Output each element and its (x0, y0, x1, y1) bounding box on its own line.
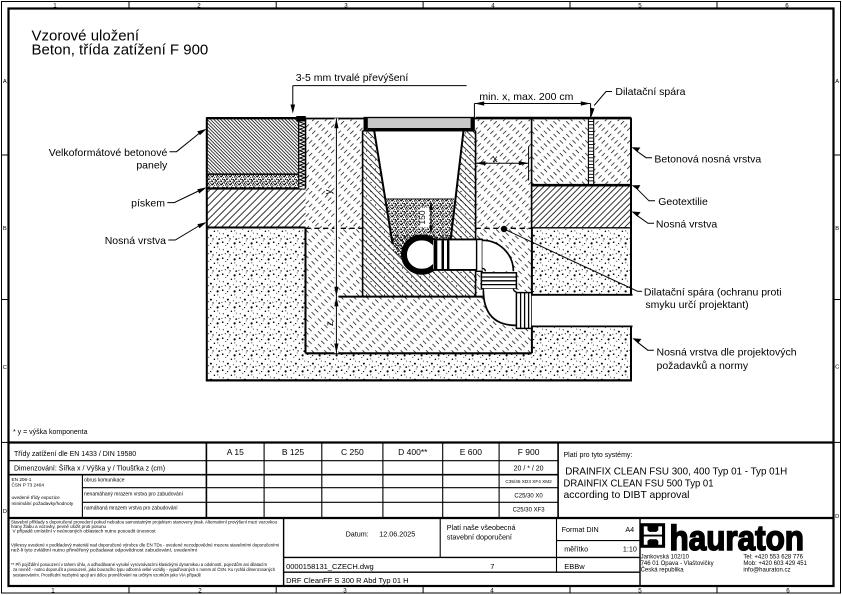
svg-text:3-5 mm trvalé převýšení: 3-5 mm trvalé převýšení (296, 72, 409, 84)
svg-text:C: C (835, 365, 839, 371)
svg-text:1:10: 1:10 (623, 545, 637, 554)
svg-text:* y = výška komponenta: * y = výška komponenta (13, 429, 88, 436)
svg-text:150: 150 (417, 210, 427, 224)
svg-text:E 600: E 600 (460, 447, 482, 457)
svg-text:panely: panely (136, 160, 168, 172)
svg-text:Dilatační spára (ochranu proti: Dilatační spára (ochranu proti (644, 286, 782, 298)
svg-text:Dimenzování: Šířka x / Výška: Dimenzování: Šířka x / Výška y / Tloušťk… (14, 464, 165, 473)
svg-text:ČSN P 73 2404: ČSN P 73 2404 (12, 482, 45, 488)
svg-text:A4: A4 (625, 525, 634, 534)
svg-text:2: 2 (197, 2, 201, 9)
svg-text:Geotextilie: Geotextilie (658, 196, 708, 208)
svg-text:4: 4 (491, 2, 495, 9)
svg-text:B: B (3, 226, 7, 232)
svg-text:6: 6 (785, 2, 789, 9)
svg-text:y: y (324, 190, 335, 195)
svg-text:C: C (3, 365, 7, 371)
svg-text:D 400**: D 400** (398, 447, 428, 457)
svg-text:za rovněž - nutno doporučit a: za rovněž - nutno doporučit a posouzení,… (13, 566, 275, 572)
svg-text:obrus komunikace: obrus komunikace (84, 478, 125, 484)
svg-text:0000158131_CZECH.dwg: 0000158131_CZECH.dwg (286, 562, 374, 571)
svg-text:12.06.2025: 12.06.2025 (379, 530, 415, 539)
svg-text:3: 3 (344, 2, 348, 9)
svg-text:Platí pro tyto systémy:: Platí pro tyto systémy: (564, 452, 633, 459)
svg-text:C25/30 XF3: C25/30 XF3 (513, 508, 546, 514)
svg-text:Format DIN: Format DIN (562, 525, 599, 534)
svg-text:C 250: C 250 (341, 447, 364, 457)
svg-text:uvedené třídy expozice: uvedené třídy expozice (12, 495, 61, 500)
svg-text:hauraton: hauraton (670, 518, 805, 558)
svg-text:B 125: B 125 (282, 447, 304, 457)
svg-text:A 15: A 15 (227, 447, 244, 457)
svg-text:4: 4 (490, 588, 494, 595)
svg-text:746 01 Opava - Vlaštovičky: 746 01 Opava - Vlaštovičky (641, 561, 714, 567)
svg-text:Nosná vrstva: Nosná vrstva (105, 235, 166, 247)
svg-text:Datum:: Datum: (346, 530, 369, 539)
svg-text:according to DIBT approval: according to DIBT approval (564, 489, 690, 501)
svg-text:Česká republika: Česká republika (641, 567, 685, 574)
svg-text:sestavováním. Prostřední nezby: sestavováním. Prostřední nezbytné spojí … (13, 572, 201, 578)
svg-text:** Při pojíždění posouzení v t: ** Při pojíždění posouzení v tahem úhlu,… (11, 561, 267, 567)
svg-text:1: 1 (51, 588, 55, 595)
svg-text:EN 206-1: EN 206-1 (12, 477, 32, 482)
svg-text:V případě umístění v neúnosnýc: V případě umístění v neúnosných oblastec… (13, 529, 157, 534)
svg-text:Betonová nosná vrstva: Betonová nosná vrstva (654, 153, 761, 165)
svg-text:Nosná vrstva: Nosná vrstva (656, 218, 717, 230)
svg-text:požadavků a normy: požadavků a normy (657, 360, 749, 372)
svg-text:5: 5 (638, 588, 642, 595)
svg-text:2: 2 (198, 588, 202, 595)
svg-text:20 / * / 20: 20 / * / 20 (514, 466, 544, 473)
svg-text:Třídy zatížení dle EN 1433 / D: Třídy zatížení dle EN 1433 / DIN 19580 (14, 451, 136, 458)
svg-text:měřítko: měřítko (564, 545, 588, 554)
svg-text:nenamáhaný mrazem vrstva pro z: nenamáhaný mrazem vrstva pro zabudování (84, 492, 184, 498)
svg-text:z: z (325, 321, 336, 326)
svg-text:3: 3 (343, 588, 347, 595)
svg-text:C35/45 XD3 XF4 XM2: C35/45 XD3 XF4 XM2 (505, 479, 552, 484)
svg-text:DRAINFIX CLEAN FSU 300, 400 Ty: DRAINFIX CLEAN FSU 300, 400 Typ 01 - Typ… (565, 466, 787, 478)
svg-text:7: 7 (490, 562, 494, 571)
svg-text:Mob: +420 603 429 451: Mob: +420 603 429 451 (743, 561, 807, 567)
svg-text:6: 6 (786, 588, 790, 595)
svg-text:minimální požadavky/hodnoty: minimální požadavky/hodnoty (12, 501, 74, 506)
svg-text:1: 1 (53, 2, 57, 9)
svg-text:Tel: +420 553 628 776: Tel: +420 553 628 776 (743, 554, 803, 560)
svg-text:D: D (835, 514, 839, 520)
svg-text:stavební doporučení: stavební doporučení (447, 533, 512, 542)
svg-text:F 900: F 900 (518, 447, 540, 457)
svg-text:Nosná vrstva dle projektových: Nosná vrstva dle projektových (657, 346, 797, 358)
svg-text:EBBw: EBBw (564, 562, 585, 571)
svg-text:info@hauraton.cz: info@hauraton.cz (743, 568, 790, 574)
svg-text:B: B (835, 226, 839, 232)
svg-text:namáhaná mrazem vrstva pro zab: namáhaná mrazem vrstva pro zabudování (84, 506, 178, 512)
svg-text:Platí naše všeobecná: Platí naše všeobecná (447, 523, 516, 532)
svg-text:než-li tyto zvláštní nutno při: než-li tyto zvláštní nutno přiměřený pož… (11, 548, 197, 553)
svg-text:DRAINFIX CLEAN FSU 500 Typ 01: DRAINFIX CLEAN FSU 500 Typ 01 (564, 478, 714, 490)
svg-text:min. x, max. 200 cm: min. x, max. 200 cm (479, 91, 573, 103)
svg-text:Beton, třída zatížení F 900: Beton, třída zatížení F 900 (32, 42, 209, 59)
svg-text:A: A (835, 79, 839, 85)
svg-text:A: A (3, 79, 7, 85)
svg-text:5: 5 (638, 2, 642, 9)
svg-text:Velkoformátové betonové: Velkoformátové betonové (49, 147, 168, 159)
svg-text:smyku určí projektant): smyku určí projektant) (645, 299, 748, 311)
svg-text:C25/30 X0: C25/30 X0 (514, 494, 543, 500)
svg-text:DRF CleanFF S 300 R Abd Typ 01: DRF CleanFF S 300 R Abd Typ 01 H (286, 576, 408, 585)
svg-text:Jankovská 102/10: Jankovská 102/10 (641, 554, 690, 560)
svg-text:D: D (3, 509, 7, 515)
svg-text:pískem: pískem (131, 197, 165, 209)
svg-text:Dilatační spára: Dilatační spára (615, 86, 685, 98)
